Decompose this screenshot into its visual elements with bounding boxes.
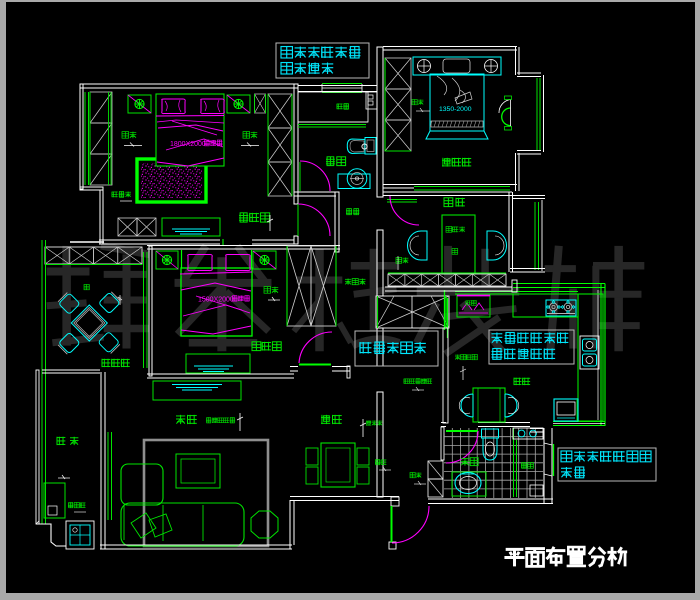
- svg-text:1800X2000: 1800X2000: [170, 141, 206, 148]
- svg-text:1350-2000: 1350-2000: [439, 106, 472, 113]
- svg-text:1500X2000: 1500X2000: [198, 297, 234, 304]
